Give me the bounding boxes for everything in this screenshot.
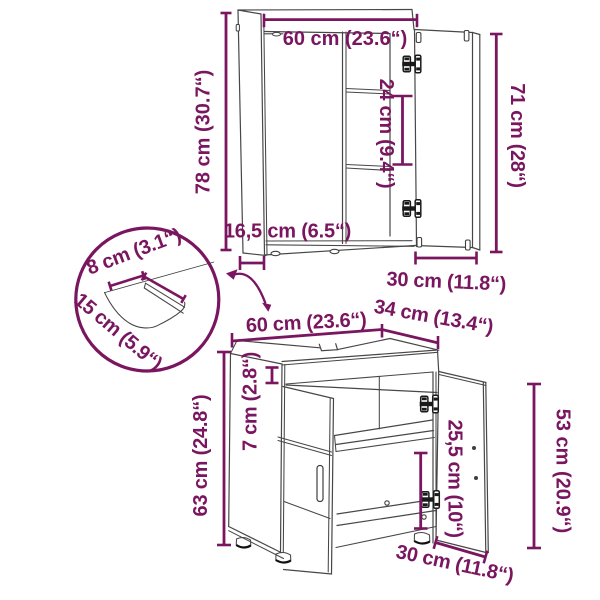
svg-text:63 cm (24.8“): 63 cm (24.8“) <box>190 395 212 517</box>
svg-text:24 cm (9.4“): 24 cm (9.4“) <box>375 79 397 189</box>
svg-text:78 cm (30.7“): 78 cm (30.7“) <box>193 70 215 195</box>
svg-text:53 cm (20.9“): 53 cm (20.9“) <box>552 409 574 534</box>
svg-text:25,5 cm (10“): 25,5 cm (10“) <box>444 419 466 537</box>
svg-text:16,5 cm (6.5“): 16,5 cm (6.5“) <box>224 221 351 243</box>
svg-text:60 cm (23.6“): 60 cm (23.6“) <box>283 28 408 50</box>
svg-text:7 cm (2.8“): 7 cm (2.8“) <box>240 352 262 451</box>
svg-text:71 cm (28“): 71 cm (28“) <box>506 83 528 188</box>
